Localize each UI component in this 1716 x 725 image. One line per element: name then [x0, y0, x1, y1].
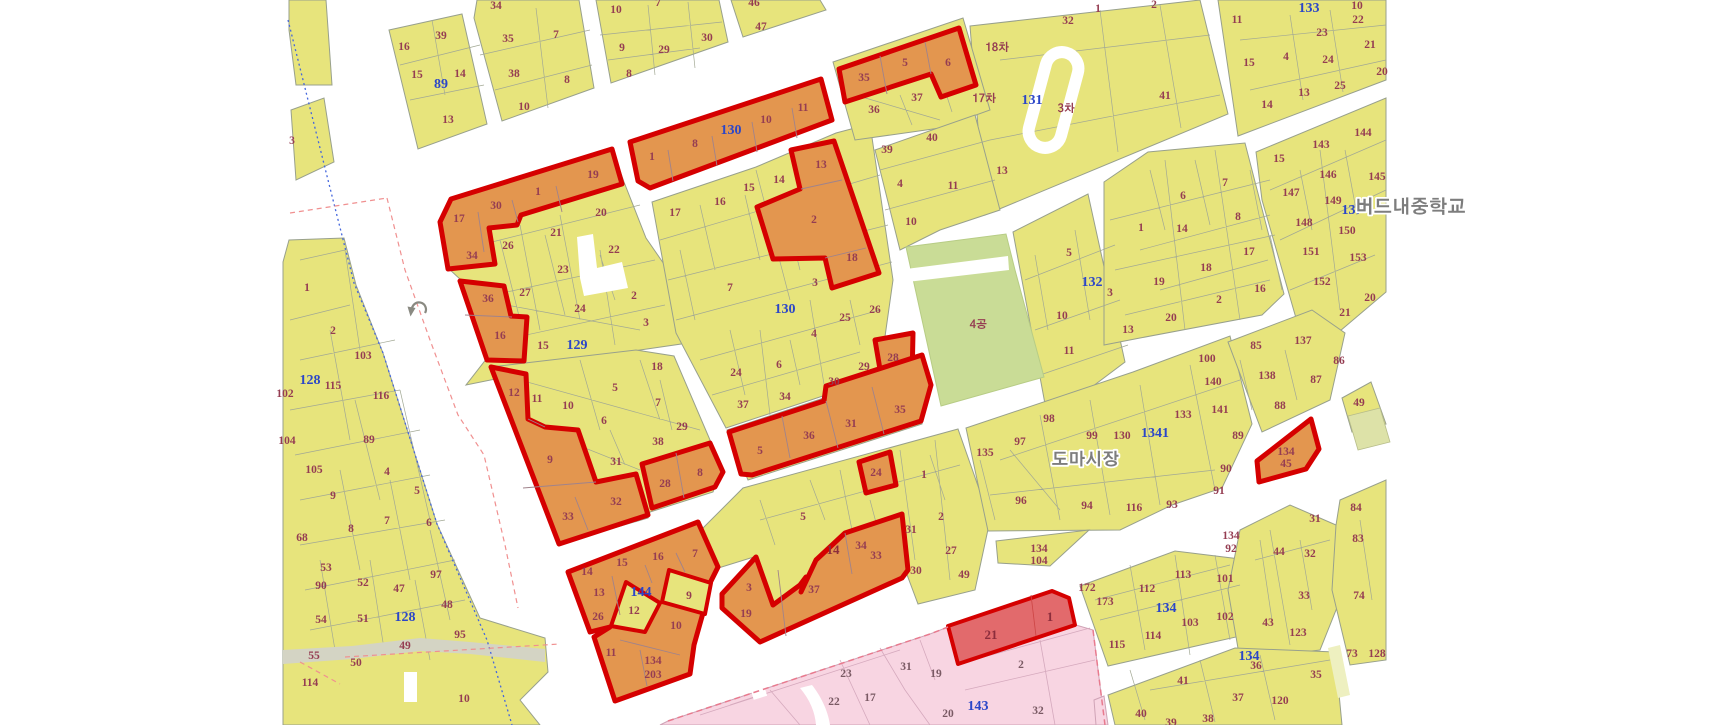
svg-text:134: 134	[1030, 543, 1048, 555]
svg-text:114: 114	[302, 677, 319, 689]
svg-text:172: 172	[1078, 582, 1096, 594]
svg-text:11: 11	[606, 647, 617, 659]
svg-text:130: 130	[1113, 430, 1131, 442]
svg-text:38: 38	[508, 68, 520, 80]
svg-text:10: 10	[1351, 0, 1363, 12]
svg-text:86: 86	[1333, 355, 1345, 367]
svg-text:8: 8	[1235, 211, 1241, 223]
svg-text:150: 150	[1338, 225, 1356, 237]
svg-text:15: 15	[616, 557, 628, 569]
svg-text:129: 129	[567, 338, 588, 353]
svg-text:10: 10	[518, 101, 530, 113]
svg-text:5: 5	[757, 445, 763, 457]
svg-text:1: 1	[649, 151, 655, 163]
svg-text:90: 90	[1220, 463, 1232, 475]
svg-text:128: 128	[395, 610, 416, 625]
svg-text:97: 97	[430, 569, 442, 581]
svg-text:30: 30	[910, 565, 922, 577]
svg-text:15: 15	[537, 340, 549, 352]
svg-text:21: 21	[1364, 39, 1376, 51]
svg-text:3: 3	[812, 277, 818, 289]
svg-text:3: 3	[289, 135, 295, 147]
svg-text:5: 5	[612, 382, 618, 394]
svg-text:143: 143	[968, 699, 989, 714]
svg-text:8: 8	[692, 138, 698, 150]
svg-text:14: 14	[827, 542, 841, 557]
svg-text:47: 47	[393, 583, 405, 595]
svg-text:9: 9	[686, 590, 692, 602]
svg-text:13: 13	[442, 114, 454, 126]
svg-text:37: 37	[911, 92, 923, 104]
svg-text:14: 14	[1261, 99, 1273, 111]
svg-text:68: 68	[296, 532, 308, 544]
svg-text:23: 23	[840, 668, 852, 680]
svg-text:38: 38	[1202, 713, 1214, 725]
svg-text:153: 153	[1349, 252, 1367, 264]
svg-text:115: 115	[1109, 639, 1126, 651]
svg-text:10: 10	[1056, 310, 1068, 322]
svg-text:4: 4	[1283, 51, 1289, 63]
svg-text:131: 131	[1022, 93, 1043, 108]
svg-text:20: 20	[1364, 292, 1376, 304]
svg-text:114: 114	[1145, 630, 1162, 642]
svg-text:33: 33	[562, 511, 574, 523]
svg-text:11: 11	[948, 180, 959, 192]
svg-text:13: 13	[815, 159, 827, 171]
svg-text:95: 95	[454, 629, 466, 641]
svg-text:39: 39	[1165, 717, 1177, 725]
svg-text:130: 130	[721, 123, 742, 138]
svg-text:7: 7	[384, 515, 390, 527]
svg-text:11: 11	[1232, 14, 1243, 26]
svg-text:6: 6	[945, 57, 951, 69]
svg-text:24: 24	[1322, 54, 1334, 66]
svg-text:52: 52	[357, 577, 369, 589]
svg-text:87: 87	[1310, 374, 1322, 386]
svg-text:98: 98	[1043, 413, 1055, 425]
svg-text:26: 26	[869, 304, 881, 316]
svg-text:33: 33	[870, 550, 882, 562]
svg-text:9: 9	[330, 490, 336, 502]
svg-text:9: 9	[547, 454, 553, 466]
svg-text:133: 133	[1299, 1, 1320, 16]
svg-text:13: 13	[1122, 324, 1134, 336]
svg-text:48: 48	[441, 599, 453, 611]
svg-text:50: 50	[350, 657, 362, 669]
svg-text:32: 32	[610, 496, 622, 508]
svg-text:3: 3	[643, 317, 649, 329]
svg-text:32: 32	[1032, 705, 1044, 717]
svg-text:39: 39	[881, 144, 893, 156]
svg-text:1: 1	[1095, 3, 1101, 15]
svg-text:149: 149	[1324, 195, 1342, 207]
svg-text:24: 24	[730, 367, 742, 379]
svg-text:21: 21	[1339, 307, 1351, 319]
svg-text:29: 29	[658, 44, 670, 56]
svg-text:102: 102	[276, 388, 294, 400]
svg-text:18: 18	[846, 252, 858, 264]
svg-text:19: 19	[930, 668, 942, 680]
svg-text:90: 90	[315, 580, 327, 592]
svg-text:2: 2	[631, 290, 637, 302]
svg-text:51: 51	[357, 613, 369, 625]
svg-text:11: 11	[1064, 345, 1075, 357]
svg-text:18: 18	[1200, 262, 1212, 274]
svg-text:89: 89	[1232, 430, 1244, 442]
svg-text:7: 7	[655, 397, 661, 409]
svg-text:55: 55	[308, 650, 320, 662]
svg-text:45: 45	[1280, 458, 1292, 470]
svg-text:21: 21	[985, 627, 998, 642]
svg-text:93: 93	[1166, 499, 1178, 511]
svg-text:30: 30	[828, 376, 840, 388]
svg-text:49: 49	[399, 640, 411, 652]
svg-text:39: 39	[435, 30, 447, 42]
svg-text:15: 15	[743, 182, 755, 194]
svg-text:132: 132	[1082, 275, 1103, 290]
svg-text:10: 10	[670, 620, 682, 632]
svg-text:94: 94	[1081, 500, 1093, 512]
svg-text:41: 41	[1159, 90, 1171, 102]
svg-text:16: 16	[714, 196, 726, 208]
svg-text:25: 25	[1334, 80, 1346, 92]
svg-text:100: 100	[1198, 353, 1216, 365]
svg-text:20: 20	[1376, 66, 1388, 78]
svg-text:26: 26	[592, 611, 604, 623]
svg-text:134: 134	[644, 655, 662, 667]
svg-text:38: 38	[652, 436, 664, 448]
svg-text:152: 152	[1313, 276, 1331, 288]
svg-text:15: 15	[1243, 57, 1255, 69]
svg-text:89: 89	[434, 77, 448, 92]
svg-text:102: 102	[1216, 611, 1234, 623]
svg-text:1: 1	[1138, 222, 1144, 234]
svg-text:17: 17	[453, 213, 465, 225]
svg-text:32: 32	[1062, 15, 1074, 27]
svg-text:143: 143	[1312, 139, 1330, 151]
svg-text:35: 35	[858, 72, 870, 84]
svg-text:13: 13	[996, 165, 1008, 177]
svg-text:31: 31	[1309, 513, 1321, 525]
svg-text:37: 37	[737, 399, 749, 411]
svg-text:16: 16	[398, 41, 410, 53]
svg-text:17: 17	[1243, 246, 1255, 258]
svg-text:130: 130	[775, 302, 796, 317]
svg-text:134: 134	[1277, 446, 1295, 458]
svg-text:28: 28	[887, 352, 899, 364]
svg-text:148: 148	[1295, 217, 1313, 229]
svg-text:99: 99	[1086, 430, 1098, 442]
svg-text:10: 10	[760, 114, 772, 126]
svg-text:10: 10	[905, 216, 917, 228]
svg-text:4: 4	[811, 328, 817, 340]
svg-text:37: 37	[1232, 692, 1244, 704]
svg-text:14: 14	[773, 174, 785, 186]
svg-text:1: 1	[304, 282, 310, 294]
svg-text:116: 116	[1126, 502, 1143, 514]
svg-text:40: 40	[1135, 708, 1147, 720]
svg-text:28: 28	[659, 478, 671, 490]
svg-text:16: 16	[652, 551, 664, 563]
svg-text:116: 116	[373, 390, 390, 402]
svg-text:10: 10	[458, 693, 470, 705]
svg-text:15: 15	[1273, 153, 1285, 165]
svg-text:2: 2	[938, 511, 944, 523]
svg-text:83: 83	[1352, 533, 1364, 545]
svg-text:17: 17	[864, 692, 876, 704]
svg-text:140: 140	[1204, 376, 1222, 388]
svg-text:47: 47	[755, 21, 767, 33]
svg-text:8: 8	[348, 523, 354, 535]
svg-text:173: 173	[1096, 596, 1114, 608]
svg-text:4: 4	[897, 178, 903, 190]
svg-text:21: 21	[550, 227, 562, 239]
svg-text:123: 123	[1289, 627, 1307, 639]
svg-text:14: 14	[454, 68, 466, 80]
svg-text:73: 73	[1346, 648, 1358, 660]
svg-text:5: 5	[800, 511, 806, 523]
svg-text:135: 135	[976, 447, 994, 459]
svg-text:134: 134	[1239, 649, 1260, 664]
svg-text:41: 41	[1177, 675, 1189, 687]
svg-text:18: 18	[651, 361, 663, 373]
svg-text:128: 128	[1368, 648, 1386, 660]
svg-text:141: 141	[1211, 404, 1229, 416]
svg-text:30: 30	[701, 32, 713, 44]
svg-text:1: 1	[1047, 609, 1054, 624]
svg-text:34: 34	[779, 391, 791, 403]
svg-text:26: 26	[502, 240, 514, 252]
svg-text:104: 104	[1030, 555, 1048, 567]
svg-text:203: 203	[644, 669, 662, 681]
svg-text:74: 74	[1353, 590, 1365, 602]
svg-text:37: 37	[808, 584, 820, 596]
svg-text:113: 113	[1175, 569, 1192, 581]
svg-text:85: 85	[1250, 340, 1262, 352]
svg-text:33: 33	[1298, 590, 1310, 602]
svg-text:103: 103	[354, 350, 372, 362]
svg-text:112: 112	[1139, 583, 1156, 595]
svg-text:88: 88	[1274, 400, 1286, 412]
svg-text:134: 134	[1222, 530, 1240, 542]
svg-text:20: 20	[942, 708, 954, 720]
svg-text:9: 9	[619, 42, 625, 54]
svg-text:24: 24	[574, 303, 586, 315]
svg-text:22: 22	[608, 244, 620, 256]
svg-text:5: 5	[414, 485, 420, 497]
svg-text:11: 11	[798, 102, 809, 114]
svg-text:6: 6	[1180, 190, 1186, 202]
svg-text:145: 145	[1368, 171, 1386, 183]
svg-text:29: 29	[858, 361, 870, 373]
svg-text:17: 17	[669, 207, 681, 219]
svg-text:20: 20	[1165, 312, 1177, 324]
svg-text:43: 43	[1262, 617, 1274, 629]
svg-text:16: 16	[1254, 283, 1266, 295]
svg-text:138: 138	[1258, 370, 1276, 382]
svg-text:29: 29	[676, 421, 688, 433]
svg-text:40: 40	[926, 132, 938, 144]
svg-text:22: 22	[1352, 14, 1364, 26]
svg-text:31: 31	[905, 524, 917, 536]
svg-text:27: 27	[519, 287, 531, 299]
svg-text:31: 31	[845, 418, 857, 430]
svg-text:8: 8	[626, 68, 632, 80]
svg-text:105: 105	[305, 464, 323, 476]
svg-text:104: 104	[278, 435, 296, 447]
svg-text:92: 92	[1225, 543, 1237, 555]
svg-text:1: 1	[535, 186, 541, 198]
svg-text:151: 151	[1302, 246, 1320, 258]
svg-text:15: 15	[411, 69, 423, 81]
svg-text:6: 6	[426, 517, 432, 529]
svg-text:144: 144	[1354, 127, 1372, 139]
svg-text:2: 2	[330, 325, 336, 337]
svg-text:7: 7	[692, 548, 698, 560]
svg-text:31: 31	[610, 456, 622, 468]
svg-text:10: 10	[610, 4, 622, 16]
svg-text:44: 44	[1273, 546, 1285, 558]
svg-text:20: 20	[595, 207, 607, 219]
svg-text:97: 97	[1014, 436, 1026, 448]
svg-text:84: 84	[1350, 502, 1362, 514]
svg-text:4: 4	[384, 466, 390, 478]
svg-text:10: 10	[562, 400, 574, 412]
svg-text:6: 6	[776, 359, 782, 371]
svg-text:96: 96	[1015, 495, 1027, 507]
svg-text:120: 120	[1271, 695, 1289, 707]
svg-text:36: 36	[482, 293, 494, 305]
svg-text:2: 2	[1216, 294, 1222, 306]
svg-text:7: 7	[655, 0, 661, 9]
svg-text:16: 16	[494, 330, 506, 342]
svg-text:101: 101	[1216, 573, 1234, 585]
svg-text:22: 22	[828, 696, 840, 708]
svg-text:8: 8	[697, 467, 703, 479]
svg-text:5: 5	[902, 57, 908, 69]
svg-text:12: 12	[628, 605, 640, 617]
svg-text:5: 5	[1066, 247, 1072, 259]
svg-text:147: 147	[1282, 187, 1300, 199]
svg-text:7: 7	[1222, 177, 1228, 189]
svg-text:32: 32	[1304, 548, 1316, 560]
svg-text:89: 89	[363, 434, 375, 446]
svg-text:27: 27	[945, 545, 957, 557]
svg-text:2: 2	[811, 214, 817, 226]
svg-text:7: 7	[553, 29, 559, 41]
svg-text:2: 2	[1018, 659, 1024, 671]
svg-text:144: 144	[631, 585, 652, 600]
svg-text:146: 146	[1319, 169, 1337, 181]
svg-text:30: 30	[490, 200, 502, 212]
svg-text:13: 13	[1298, 87, 1310, 99]
svg-text:49: 49	[958, 569, 970, 581]
svg-text:23: 23	[557, 264, 569, 276]
svg-text:128: 128	[300, 373, 321, 388]
svg-text:31: 31	[900, 661, 912, 673]
svg-text:35: 35	[502, 33, 514, 45]
svg-text:12: 12	[508, 387, 520, 399]
svg-text:103: 103	[1181, 617, 1199, 629]
svg-text:6: 6	[601, 415, 607, 427]
svg-text:35: 35	[1310, 669, 1322, 681]
svg-text:14: 14	[1176, 223, 1188, 235]
svg-text:19: 19	[740, 608, 752, 620]
svg-text:134: 134	[1156, 601, 1177, 616]
svg-text:13: 13	[593, 587, 605, 599]
svg-text:34: 34	[490, 0, 502, 12]
svg-text:2: 2	[1151, 0, 1157, 11]
svg-text:7: 7	[727, 282, 733, 294]
svg-text:133: 133	[1174, 409, 1192, 421]
svg-text:8: 8	[564, 74, 570, 86]
svg-text:34: 34	[466, 250, 478, 262]
svg-text:19: 19	[1153, 276, 1165, 288]
svg-text:36: 36	[868, 104, 880, 116]
svg-text:53: 53	[320, 562, 332, 574]
svg-text:3: 3	[1107, 287, 1113, 299]
svg-text:46: 46	[748, 0, 760, 9]
svg-text:23: 23	[1316, 27, 1328, 39]
svg-text:19: 19	[587, 169, 599, 181]
svg-text:14: 14	[581, 566, 593, 578]
svg-text:1: 1	[921, 469, 927, 481]
svg-text:25: 25	[839, 312, 851, 324]
svg-text:115: 115	[325, 380, 342, 392]
svg-text:1341: 1341	[1141, 426, 1169, 441]
svg-text:11: 11	[532, 393, 543, 405]
svg-text:24: 24	[870, 467, 882, 479]
svg-text:91: 91	[1213, 485, 1225, 497]
svg-text:137: 137	[1294, 335, 1312, 347]
svg-text:34: 34	[855, 540, 867, 552]
svg-text:3: 3	[746, 582, 752, 594]
svg-text:35: 35	[894, 404, 906, 416]
svg-text:49: 49	[1353, 397, 1365, 409]
svg-text:36: 36	[803, 430, 815, 442]
svg-text:54: 54	[315, 614, 327, 626]
